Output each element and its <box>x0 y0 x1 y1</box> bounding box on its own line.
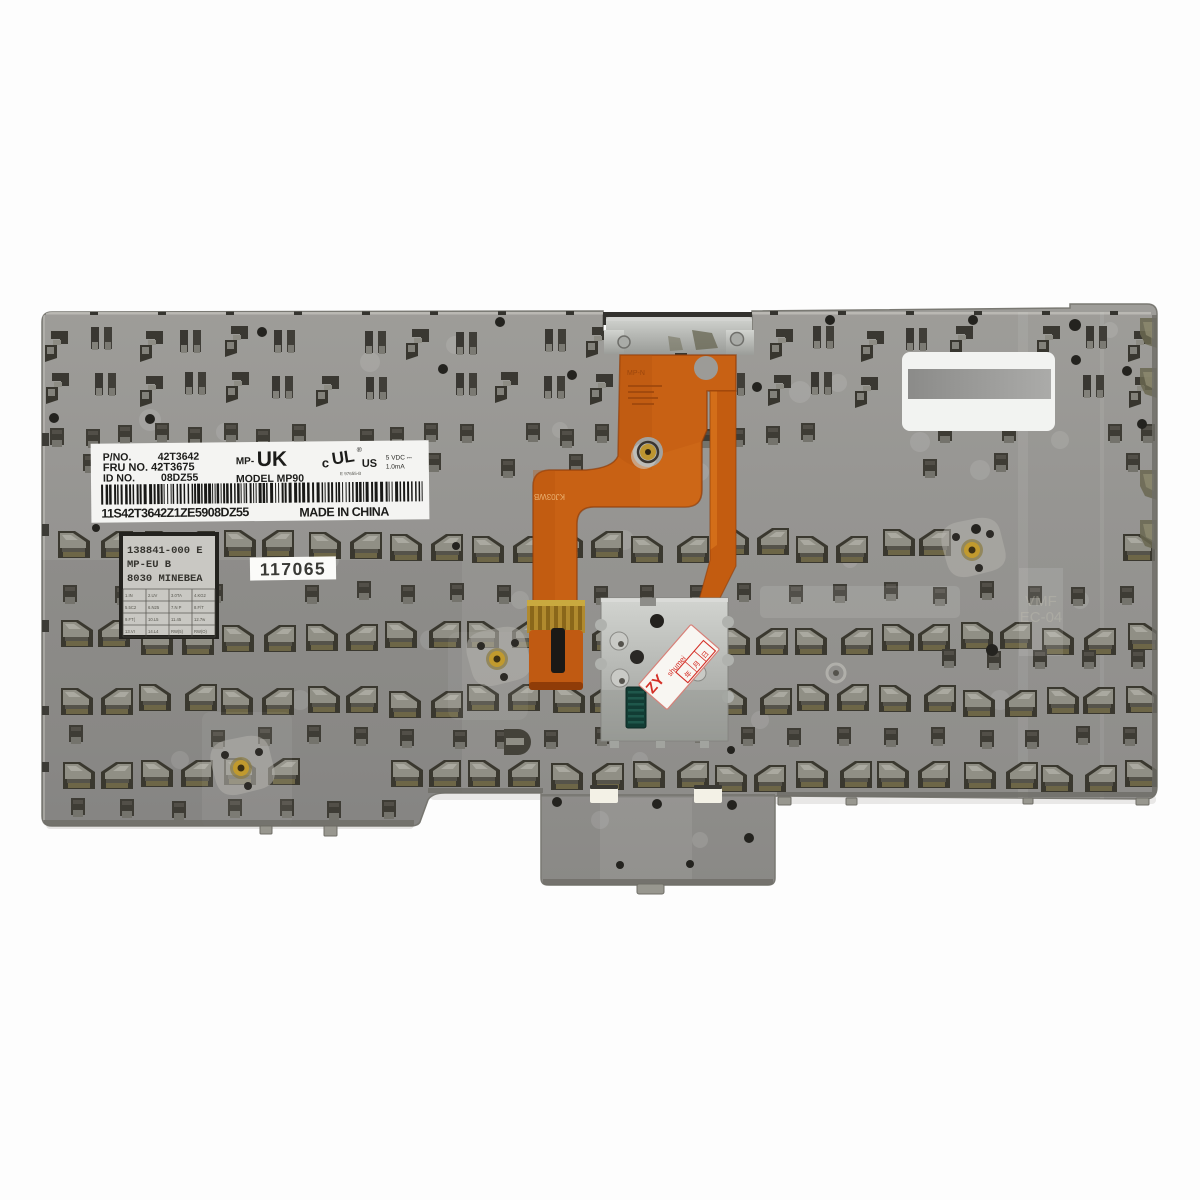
svg-text:2.UV: 2.UV <box>148 593 158 598</box>
svg-text:UK: UK <box>257 448 288 471</box>
svg-text:11S42T3642Z1ZE5908DZ55: 11S42T3642Z1ZE5908DZ55 <box>101 505 249 521</box>
svg-text:3.0TA: 3.0TA <box>171 593 182 598</box>
svg-text:11.45: 11.45 <box>171 617 182 622</box>
svg-text:RW(5): RW(5) <box>171 629 184 634</box>
svg-text:MP-EU B: MP-EU B <box>127 559 172 571</box>
svg-text:8030 MINEBEA: 8030 MINEBEA <box>127 573 203 585</box>
svg-text:138841-000 E: 138841-000 E <box>127 545 203 557</box>
svg-text:08DZ55: 08DZ55 <box>161 472 199 484</box>
svg-text:10.L5: 10.L5 <box>148 617 159 622</box>
svg-text:13.VI: 13.VI <box>125 629 135 634</box>
svg-text:8.F/T: 8.F/T <box>194 605 204 610</box>
svg-text:6.N25: 6.N25 <box>148 605 160 610</box>
svg-text:5.5C2: 5.5C2 <box>125 605 137 610</box>
svg-text:ID NO.: ID NO. <box>103 472 135 484</box>
svg-text:E 97655-B: E 97655-B <box>340 471 361 476</box>
svg-text:5 VDC ⎓: 5 VDC ⎓ <box>386 454 412 461</box>
svg-text:US: US <box>362 458 377 470</box>
svg-text:VMF: VMF <box>1025 593 1057 610</box>
svg-text:1.IN: 1.IN <box>125 593 133 598</box>
svg-text:14.L4: 14.L4 <box>148 629 159 634</box>
svg-text:UL: UL <box>331 446 356 468</box>
svg-text:KJ03WB: KJ03WB <box>534 492 565 501</box>
svg-text:EC-04: EC-04 <box>1020 609 1063 626</box>
svg-text:®: ® <box>357 446 363 454</box>
svg-text:MP-: MP- <box>236 456 254 467</box>
svg-text:MP-N: MP-N <box>627 370 645 377</box>
svg-text:117065: 117065 <box>260 559 327 580</box>
svg-text:7.N P: 7.N P <box>171 605 182 610</box>
svg-text:c: c <box>322 455 329 470</box>
svg-text:MADE IN CHINA: MADE IN CHINA <box>299 505 389 520</box>
svg-text:12.7w: 12.7w <box>194 617 206 622</box>
svg-text:4.KG2: 4.KG2 <box>194 593 207 598</box>
svg-text:1.0mA: 1.0mA <box>386 463 406 470</box>
svg-text:9.FT(: 9.FT( <box>125 617 136 622</box>
svg-text:RW(O): RW(O) <box>194 629 208 634</box>
